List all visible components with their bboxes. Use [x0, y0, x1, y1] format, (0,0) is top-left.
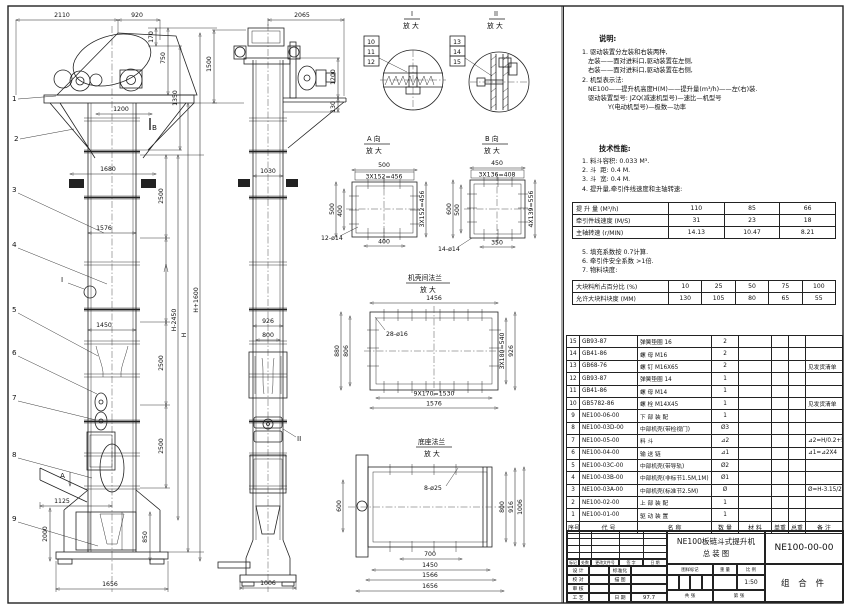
side-elevation-view: II 2065 1500 1200 130 1030 926 800 1006	[206, 12, 346, 592]
dim-bf-916: 916	[508, 501, 515, 513]
tb-label-sheet-no: 第 张	[713, 590, 765, 602]
dim-b-450: 450	[491, 160, 503, 167]
detail-i-zoom-label: 放 大	[403, 21, 419, 30]
base-flange-zoom-label: 放 大	[424, 449, 440, 458]
dim-1450: 1450	[96, 322, 112, 329]
dim-bf-1006: 1006	[517, 499, 524, 515]
tb-scale-value: 1:50	[737, 575, 765, 590]
dim-f-1456: 1456	[426, 295, 442, 302]
dim-920: 920	[131, 12, 143, 19]
dim-130: 130	[330, 101, 337, 113]
note-line: 右装——面对进料口,驱动装置在右侧,	[582, 66, 757, 75]
dim-1576: 1576	[96, 225, 112, 232]
dim-a-pitch-top: 3X152=456	[366, 174, 403, 181]
dim-bf-800: 800	[499, 501, 506, 513]
detail-ii-zoom-label: 放 大	[487, 21, 503, 30]
tech-line: 4. 提升量,牵引件线速度和主轴转速:	[582, 185, 682, 194]
dim-1350: 1350	[172, 90, 179, 106]
dim-926: 926	[262, 318, 274, 325]
dim-h1600: H+1600	[193, 287, 200, 313]
dim-bf-1450: 1450	[422, 562, 438, 569]
view-b: B 向 放 大 450 3X136=408 600 500 4X139=556 …	[438, 134, 535, 253]
tb-label-mark: 标记	[567, 559, 579, 566]
tech-line: 7. 物料块度:	[582, 266, 654, 275]
dim-a-holes: 12-ø14	[321, 235, 343, 242]
dim-b-600: 600	[446, 203, 453, 215]
tb-product-name: NE100板链斗式提升机	[677, 536, 755, 547]
tech-block-1: 1. 料斗容积: 0.033 M³. 2. 斗 距: 0.4 M. 3. 斗 宽…	[582, 157, 682, 194]
note-line: 1. 驱动装置分左装和右装两种,	[582, 48, 757, 57]
view-b-zoom-label: 放 大	[484, 146, 500, 155]
balloon-9: 9	[12, 514, 17, 523]
view-b-title: B 向	[485, 134, 499, 143]
tech-block-2: 5. 填充系数按 0.7计算. 6. 牵引件安全系数 >1倍. 7. 物料块度:	[582, 248, 654, 276]
tb-label-trace: 描 图	[609, 575, 631, 584]
base-flange-view: 底座法兰 放 大 600 800 916 1006 700 1450 1566 …	[336, 437, 524, 591]
tb-label-date2: 日 期	[609, 593, 631, 602]
bom-row: 15GB93-87弹簧垫圈 162	[567, 336, 843, 348]
dim-1680: 1680	[100, 166, 116, 173]
dim-1200: 1200	[113, 106, 129, 113]
dim-1656: 1656	[102, 581, 118, 588]
dim-f-pitch-bottom: 9X170=1530	[414, 391, 455, 398]
casing-flange-title: 机壳间法兰	[408, 273, 442, 282]
bom-row: 3NE100-03A-00中部机壳(标准节2.5M)ØØ=H-3.15/2.5	[567, 484, 843, 496]
dim-750: 750	[160, 52, 167, 64]
balloon-3: 3	[12, 185, 17, 194]
bom-row: 2NE100-02-00上 部 装 配1	[567, 497, 843, 509]
note-line: 左装——面对进料口,驱动装置在左侧,	[582, 57, 757, 66]
bom-row: 13GB68-76螺 钉 M16X652见发货清单	[567, 360, 843, 372]
dim-1125: 1125	[54, 498, 70, 505]
dim-f-926: 926	[508, 345, 515, 357]
dim-a-500-left: 500	[329, 203, 336, 215]
tech-line: 3. 斗 宽: 0.4 M.	[582, 175, 682, 184]
balloon-10: 10	[367, 39, 375, 46]
tech-line: 2. 斗 距: 0.4 M.	[582, 166, 682, 175]
dim-1500: 1500	[206, 56, 213, 72]
dim-800: 800	[262, 332, 274, 339]
bom-row: 7NE100-05-00料 斗⊿2⊿2=H/0.2+5.75	[567, 435, 843, 447]
tech-line: 6. 牵引件安全系数 >1倍.	[582, 257, 654, 266]
dim-b-pitch-top: 3X136=408	[479, 172, 516, 179]
tb-date-value: 97.7	[631, 593, 667, 602]
detail-ii-view: II 放 大 13 14 15	[450, 10, 529, 112]
detail-marker-i: I	[61, 275, 63, 284]
tb-label-design: 设 计	[567, 566, 589, 575]
front-elevation-view: 2110 920 170 750 1350 1200 1680 1576 145…	[12, 12, 217, 592]
tb-drawing-number: NE100-00-00	[765, 531, 843, 564]
bom-row: 1NE100-01-00驱 动 装 置1	[567, 509, 843, 521]
notes-heading: 说明:	[599, 34, 616, 44]
dim-f-880: 880	[334, 345, 341, 357]
balloon-2: 2	[14, 134, 19, 143]
dim-b-pitch-right: 4X139=556	[528, 190, 535, 227]
dim-b-350: 350	[491, 240, 503, 247]
tb-label-std: 标准化	[609, 566, 631, 575]
note-line: 驱动装置型号: JZQ(减速机型号)—速比—机型号	[582, 94, 757, 103]
detail-marker-ii: II	[297, 434, 301, 443]
casing-flange-view: 机壳间法兰 放 大 1456 880 806 3X180=540 926 9X1…	[334, 273, 515, 408]
balloon-13: 13	[453, 39, 461, 46]
dim-bf-holes: 8-ø25	[424, 485, 442, 492]
drawing-sheet: 2110 920 170 750 1350 1200 1680 1576 145…	[0, 0, 850, 609]
dim-a-400-bottom: 400	[378, 239, 390, 246]
dim-bf-600: 600	[336, 500, 343, 512]
detail-ii-num: II	[494, 10, 498, 18]
casing-flange-zoom-label: 放 大	[420, 285, 436, 294]
tech-line: 5. 填充系数按 0.7计算.	[582, 248, 654, 257]
tb-part-type: 组 合 件	[765, 564, 843, 602]
dim-a-500-top: 500	[378, 162, 390, 169]
dim-2110: 2110	[54, 12, 70, 19]
balloon-6: 6	[12, 348, 17, 357]
note-line: Y(电动机型号)—极数—功率	[582, 103, 757, 112]
note-line: 2. 机型表示法:	[582, 76, 757, 85]
dim-2500-3: 2500	[158, 438, 165, 454]
balloon-5: 5	[12, 305, 17, 314]
right-panel: 说明: 1. 驱动装置分左装和右装两种, 左装——面对进料口,驱动装置在左侧, …	[563, 6, 845, 603]
tb-label-craft: 工 艺	[567, 593, 589, 602]
detail-i-view: I 放 大 10 11 12	[364, 10, 446, 110]
tech-heading: 技术性能:	[599, 144, 631, 154]
dim-850: 850	[142, 531, 149, 543]
bom-row: 4NE100-03B-00中部机壳(非标节1.5M,1M)Ø1	[567, 472, 843, 484]
dim-bf-700: 700	[424, 551, 436, 558]
dim-f-pitch: 3X180=540	[499, 332, 506, 369]
dim-1030: 1030	[260, 168, 276, 175]
bom-row: 14GB41-86螺 母 M162	[567, 348, 843, 360]
dim-2500-1: 2500	[158, 188, 165, 204]
balloon-11: 11	[367, 49, 375, 56]
dim-2000: 2000	[42, 526, 49, 542]
tb-label-total-sheets: 共 张	[667, 590, 713, 602]
lump-size-table: 大块料所占百分比 (%)10255075100 允许大块料块度 (MM)1301…	[572, 280, 836, 305]
balloon-8: 8	[12, 450, 17, 459]
balloon-1: 1	[12, 94, 17, 103]
dim-f-holes: 28-ø16	[386, 331, 408, 338]
balloon-12: 12	[367, 59, 375, 66]
title-block: 标记 处数 更改文件号 签 字 日 期 设 计 校 对 审 核 工 艺 标准化 …	[566, 530, 844, 603]
tb-product-cell: NE100板链斗式提升机 总 装 图	[667, 531, 765, 564]
dim-1200-side: 1200	[330, 69, 337, 85]
balloon-7: 7	[12, 393, 17, 402]
bom-table: 15GB93-87弹簧垫圈 162 14GB41-86螺 母 M162 13GB…	[566, 335, 843, 534]
bom-row: 9NE100-06-00下 部 装 配1	[567, 410, 843, 422]
bom-row: 8NE100-03D-00中部机壳(带检视门)Ø3	[567, 422, 843, 434]
tb-label-stamp: 图样标记	[667, 564, 713, 575]
tb-label-check: 校 对	[567, 575, 589, 584]
balloon-14: 14	[453, 49, 461, 56]
dim-a-pitch-right: 3X152=456	[419, 190, 426, 227]
dim-h-2450: H-2450	[171, 309, 178, 332]
dim-h: H	[181, 332, 188, 337]
dim-2500-2: 2500	[158, 355, 165, 371]
section-marker-b: B	[152, 123, 157, 132]
dim-b-500: 500	[454, 204, 461, 216]
base-flange-title: 底座法兰	[418, 437, 445, 446]
dim-1006: 1006	[260, 580, 276, 587]
detail-i-num: I	[411, 10, 413, 18]
bom-row: 5NE100-03C-00中部机壳(带导轨)Ø2	[567, 459, 843, 471]
note-line: NE100——提升机高度H(M)——提升量(m³/h)——左(右)装.	[582, 85, 757, 94]
dim-bf-1566: 1566	[422, 572, 438, 579]
balloon-4: 4	[12, 240, 17, 249]
view-a: A 向 放 大 500 3X152=456 500 400 3X152=456 …	[321, 134, 426, 246]
tb-label-doc: 更改文件号	[591, 559, 619, 566]
view-marker-a: A	[60, 471, 65, 480]
view-a-zoom-label: 放 大	[366, 146, 382, 155]
dim-b-holes: 14-ø14	[438, 246, 460, 253]
dim-bf-1656: 1656	[422, 583, 438, 590]
notes-block: 1. 驱动装置分左装和右装两种, 左装——面对进料口,驱动装置在左侧, 右装——…	[582, 48, 757, 112]
tb-label-weight: 重 量	[713, 564, 737, 575]
dim-170: 170	[148, 31, 155, 43]
tech-line: 1. 料斗容积: 0.033 M³.	[582, 157, 682, 166]
bom-row: 11GB41-86螺 母 M141	[567, 385, 843, 397]
tb-label-date: 日 期	[643, 559, 667, 566]
tb-label-audit: 审 核	[567, 584, 589, 593]
tb-drawing-title: 总 装 图	[703, 549, 729, 559]
bom-row: 6NE100-04-00输 送 链⊿1⊿1=⊿2X4	[567, 447, 843, 459]
tb-label-sign: 签 字	[619, 559, 643, 566]
balloon-15: 15	[453, 59, 461, 66]
performance-table: 提 升 量 (M³/h)1108566 牵引件线速度 (M/S)312318 主…	[572, 202, 836, 239]
bom-row: 12GB93-87弹簧垫圈 141	[567, 373, 843, 385]
dim-f-1576: 1576	[426, 401, 442, 408]
dim-f-806: 806	[343, 345, 350, 357]
dim-a-400-left: 400	[337, 205, 344, 217]
tb-label-ratio: 比 例	[737, 564, 765, 575]
bom-row: 10GB5782-86螺 栓 M14X451见发货清单	[567, 397, 843, 409]
dim-2065: 2065	[294, 12, 310, 19]
view-a-title: A 向	[367, 134, 381, 143]
tb-label-count: 处数	[579, 559, 591, 566]
